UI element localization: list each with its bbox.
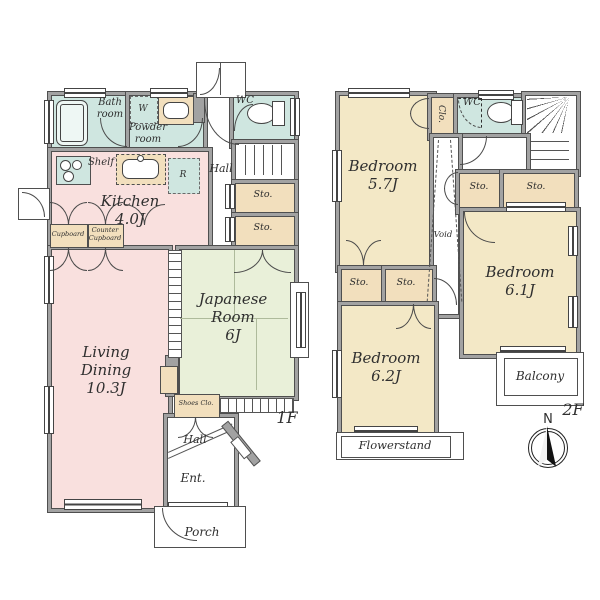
- window: [290, 98, 300, 136]
- stairs-1f: [232, 140, 298, 184]
- counter-cupboard-box-1f: [88, 224, 124, 248]
- window: [332, 350, 342, 398]
- tatami-line: [256, 318, 257, 390]
- tatami-line: [180, 318, 288, 319]
- burner-icon: [72, 160, 82, 170]
- compass-north-label: N: [536, 412, 560, 428]
- stairs-winder-2f: [527, 97, 569, 133]
- bathtub-icon: [56, 100, 88, 146]
- sliding-door-storage1: [225, 184, 235, 209]
- powder-sink-icon: [163, 102, 189, 119]
- small-storage-1f: [160, 366, 178, 394]
- shoes-closet-box-1f: [174, 394, 220, 418]
- window: [332, 150, 342, 202]
- window: [44, 100, 54, 144]
- window: [64, 499, 142, 510]
- window: [348, 88, 410, 98]
- flowerstand-inner-2f: [341, 436, 451, 458]
- washer-box-1f: [130, 96, 158, 124]
- stairs-steps-1f: [237, 145, 287, 175]
- stairs-2f: [522, 92, 580, 176]
- balcony-inner-2f: [504, 358, 578, 396]
- burner-icon: [63, 171, 74, 182]
- room-storage1-1f: [232, 180, 298, 217]
- sliding-door-storage2: [225, 217, 235, 242]
- burner-icon: [60, 160, 71, 171]
- shoji-sliding-door-1f: [168, 250, 182, 358]
- window: [568, 296, 578, 328]
- floorplan-canvas: Bath room W Powder room WC Shelf R Kitch…: [0, 0, 600, 600]
- room-storage2-1f: [232, 213, 298, 250]
- sliding-door-storage-2f: [506, 202, 566, 212]
- sliding-door-1f: [220, 398, 294, 413]
- window: [296, 292, 306, 348]
- window: [150, 88, 188, 98]
- alcove-divider: [220, 63, 221, 95]
- fridge-box-1f: [168, 158, 200, 194]
- window: [478, 90, 514, 100]
- window: [44, 386, 54, 434]
- stairs-steps-2f: [527, 133, 569, 167]
- room-living-dining-1f: [48, 246, 172, 512]
- window: [568, 226, 578, 256]
- kitchen-sink-icon: [122, 159, 159, 179]
- window: [64, 88, 106, 98]
- faucet-icon: [137, 155, 144, 162]
- cupboard-box-1f: [50, 224, 88, 248]
